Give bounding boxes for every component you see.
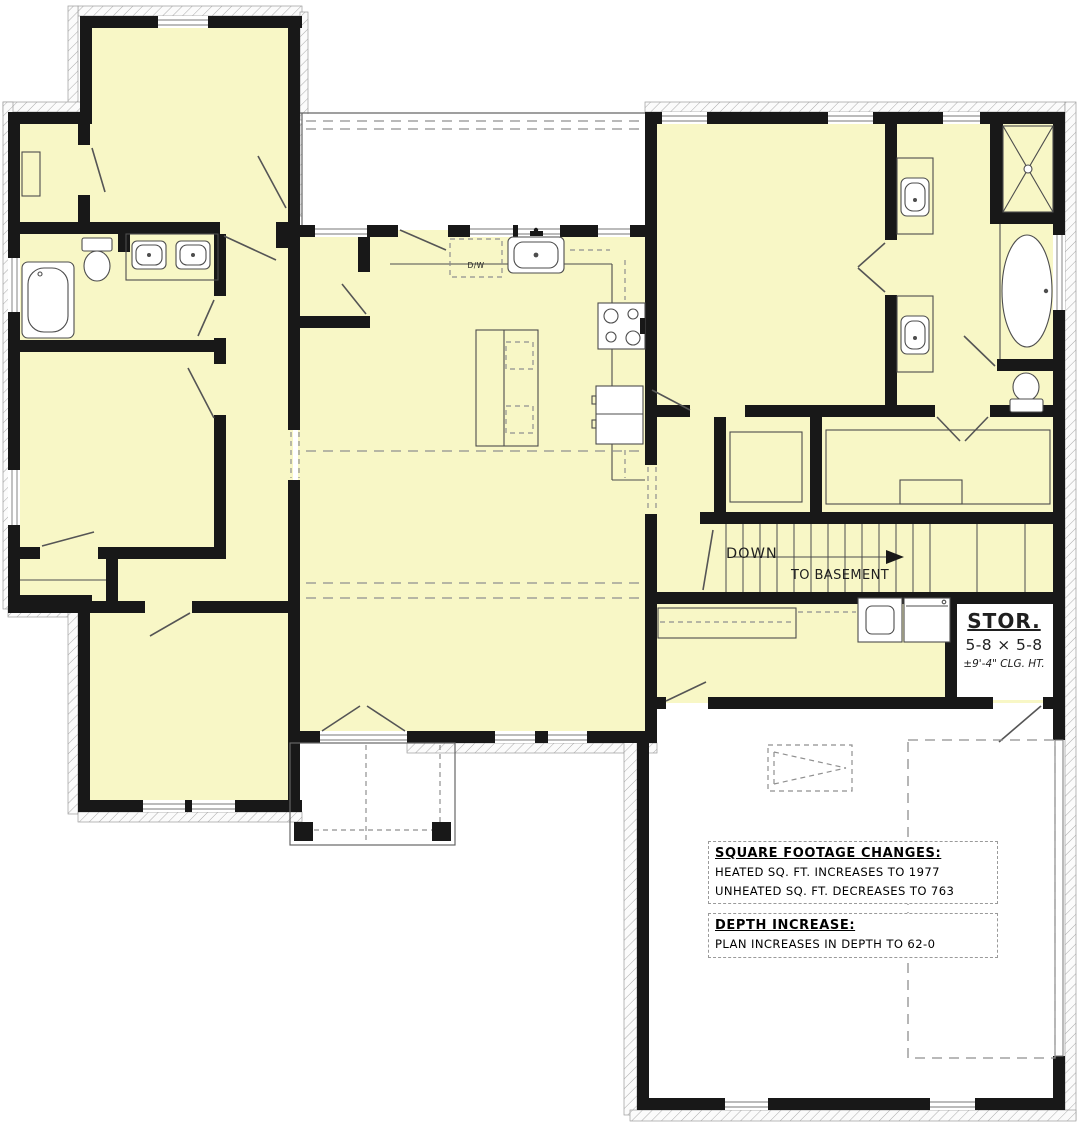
dryer-icon xyxy=(904,598,950,642)
range-icon xyxy=(598,303,645,349)
depth-note-line: PLAN INCREASES IN DEPTH TO 62-0 xyxy=(715,935,991,954)
storage-room-label: STOR. xyxy=(952,609,1056,633)
toilet-icon xyxy=(82,238,112,281)
storage-dimensions-label: 5-8 × 5-8 xyxy=(952,636,1056,654)
storage-ceiling-height-label: ±9'-4" CLG. HT. xyxy=(946,658,1062,670)
bathtub-icon xyxy=(22,262,74,338)
sqft-unheated-line: UNHEATED SQ. FT. DECREASES TO 763 xyxy=(715,882,991,901)
front-porch xyxy=(290,743,455,845)
stairs-to-basement-label: TO BASEMENT xyxy=(772,568,908,583)
attic-access xyxy=(768,745,852,791)
dishwasher-label: D/W xyxy=(450,261,502,270)
room-left-wing xyxy=(13,116,293,608)
sqft-change-note: SQUARE FOOTAGE CHANGES: HEATED SQ. FT. I… xyxy=(708,841,998,904)
porch-column xyxy=(294,822,313,841)
porch-column xyxy=(432,822,451,841)
room-rear-porch xyxy=(302,114,645,227)
refrigerator-icon xyxy=(592,386,643,444)
stairs-down-label: DOWN xyxy=(726,546,778,562)
washer-icon xyxy=(858,598,902,642)
sqft-heated-line: HEATED SQ. FT. INCREASES TO 1977 xyxy=(715,863,991,882)
room-bedroom3 xyxy=(80,595,292,807)
floor-plan: D/W DOWN TO BASEMENT STOR. 5-8 × 5-8 ±9'… xyxy=(0,0,1080,1124)
sqft-note-title: SQUARE FOOTAGE CHANGES: xyxy=(715,844,991,863)
depth-increase-note: DEPTH INCREASE: PLAN INCREASES IN DEPTH … xyxy=(708,913,998,958)
depth-note-title: DEPTH INCREASE: xyxy=(715,916,991,935)
